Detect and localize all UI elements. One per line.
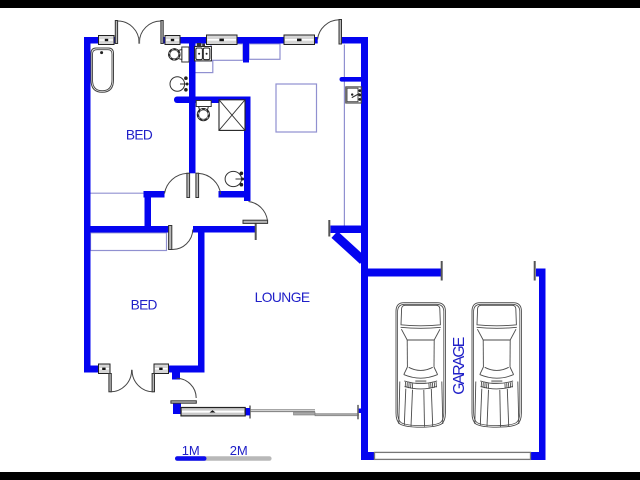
svg-text:LOUNGE: LOUNGE [255, 290, 310, 305]
svg-text:2M: 2M [230, 443, 248, 458]
svg-text:BED: BED [131, 298, 158, 313]
svg-text:BED: BED [126, 127, 153, 142]
svg-text:1M: 1M [182, 443, 200, 458]
svg-text:GARAGE: GARAGE [451, 337, 468, 395]
